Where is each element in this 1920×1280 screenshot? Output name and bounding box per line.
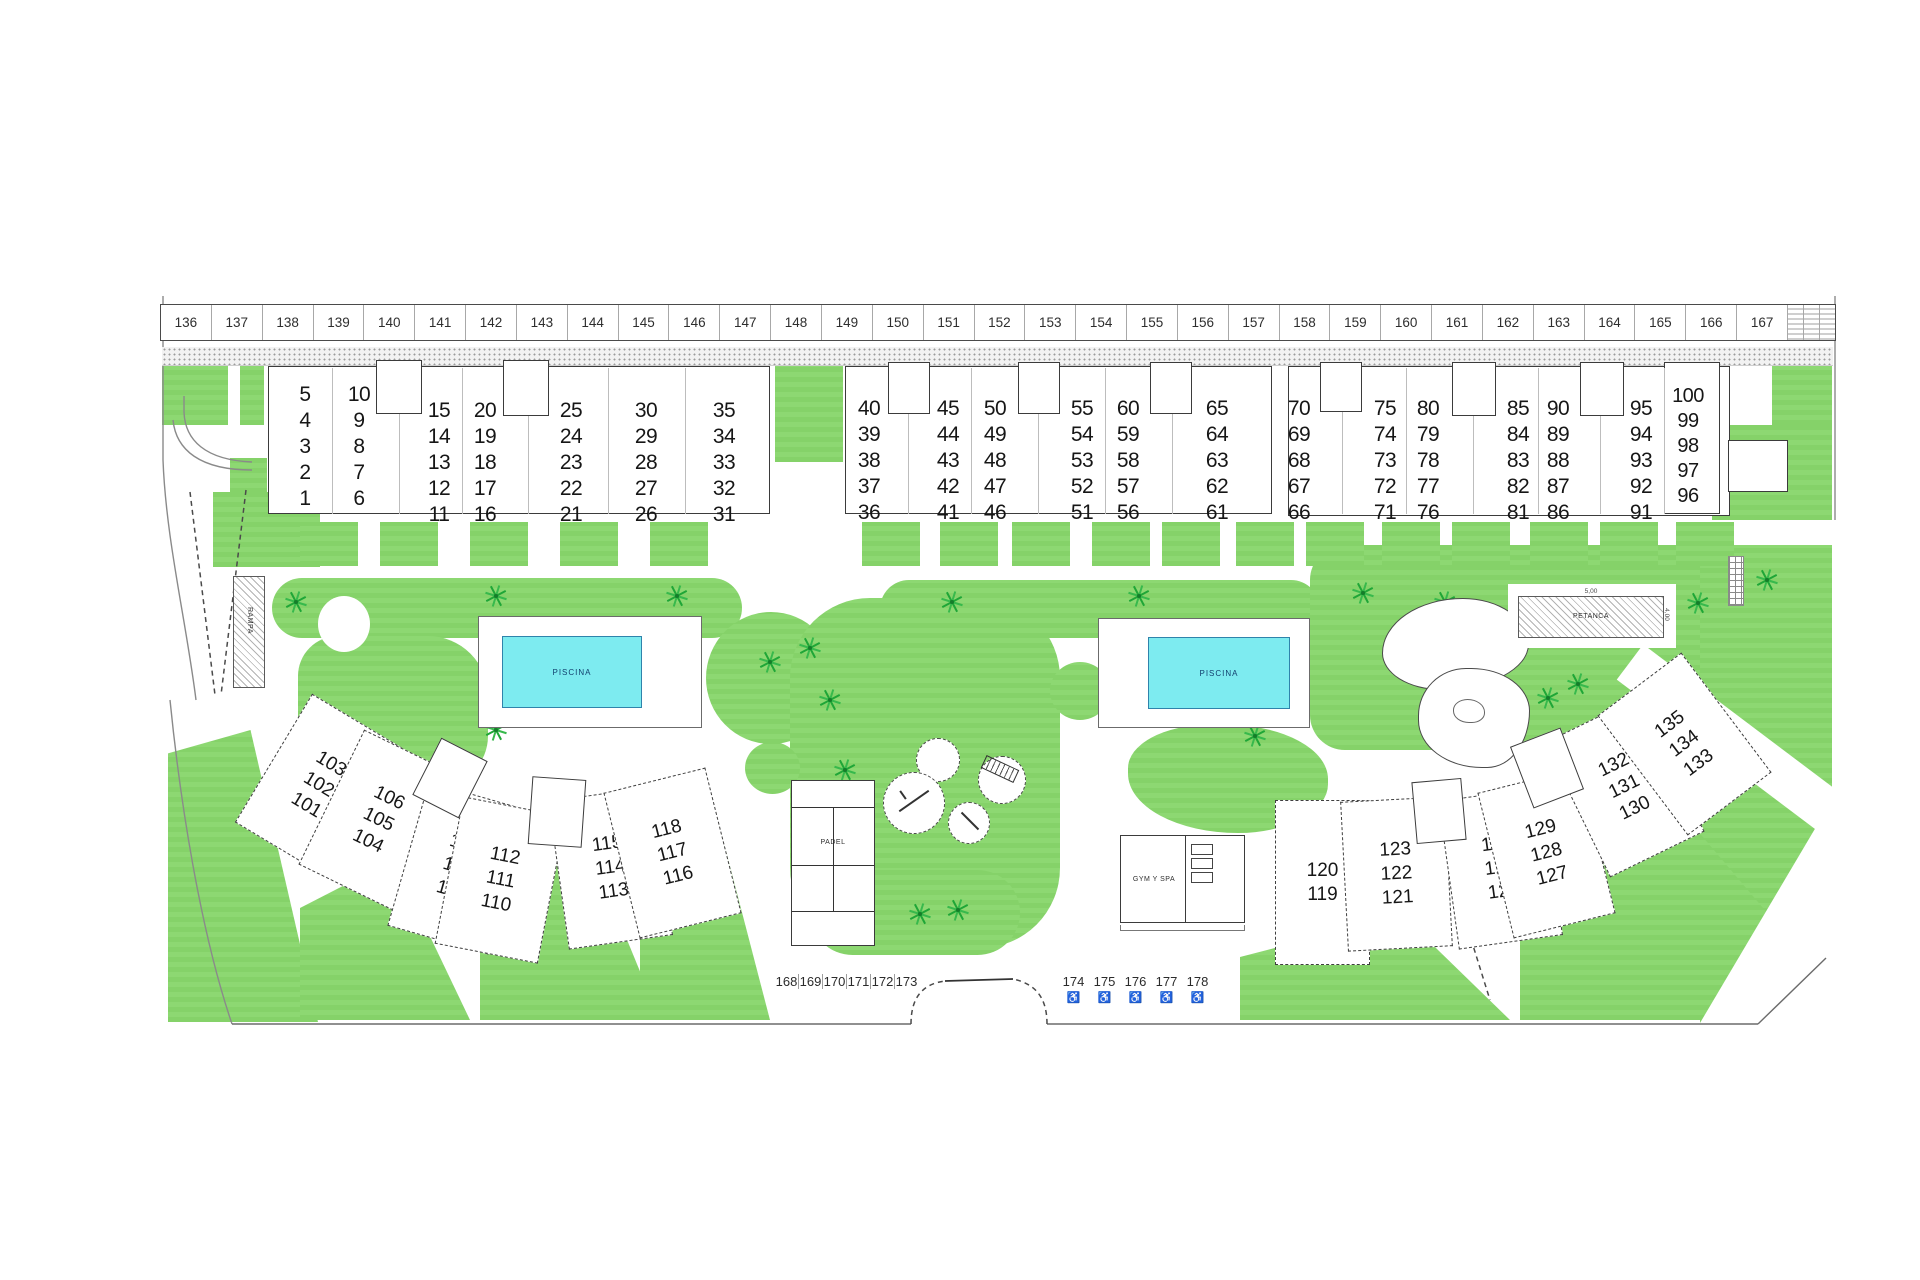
gym-spa-building: GYM Y SPA [1120, 835, 1245, 923]
palm-tree-icon [283, 589, 309, 615]
parking-space-small [1804, 305, 1820, 340]
parking-space-161: 161 [1432, 305, 1483, 340]
parking-number: 174 [1063, 974, 1085, 989]
parking-space-147: 147 [720, 305, 771, 340]
unit-column-86-90: 9089888786 [1532, 396, 1584, 526]
equipment [1191, 844, 1213, 855]
unit-8: 8 [333, 434, 385, 460]
unit-77: 77 [1402, 474, 1454, 500]
palm-tree-icon [1350, 580, 1376, 606]
parking-space-small [1788, 305, 1804, 340]
parking-space-170: 170 [822, 974, 846, 989]
parking-space-149: 149 [822, 305, 873, 340]
parking-space-162: 162 [1483, 305, 1534, 340]
unit-14: 14 [413, 424, 465, 450]
petanca-court: 5,00 PETANCA 4,00 [1518, 596, 1664, 638]
unit-90: 90 [1532, 396, 1584, 422]
unit-79: 79 [1402, 422, 1454, 448]
unit-22: 22 [545, 476, 597, 502]
unit-33: 33 [698, 450, 750, 476]
unit-98: 98 [1662, 434, 1714, 459]
unit-44: 44 [922, 422, 974, 448]
unit-88: 88 [1532, 448, 1584, 474]
unit-47: 47 [969, 474, 1021, 500]
unit-41: 41 [922, 500, 974, 526]
playground-circle [883, 772, 945, 834]
stair-core [503, 360, 549, 416]
unit-43: 43 [922, 448, 974, 474]
unit-divider [608, 368, 609, 514]
stair-core [528, 776, 587, 848]
unit-25: 25 [545, 398, 597, 424]
unit-31: 31 [698, 502, 750, 528]
unit-38: 38 [843, 448, 895, 474]
parking-space-141: 141 [415, 305, 466, 340]
padel-label: PADEL [792, 839, 874, 846]
unit-34: 34 [698, 424, 750, 450]
unit-46: 46 [969, 500, 1021, 526]
stair-core [1150, 362, 1192, 414]
unit-17: 17 [459, 476, 511, 502]
unit-column-31-35: 3534333231 [698, 398, 750, 528]
unit-48: 48 [969, 448, 1021, 474]
parking-space-155: 155 [1127, 305, 1178, 340]
palm-tree-icon [1126, 583, 1152, 609]
parking-space-136: 136 [161, 305, 212, 340]
wheelchair-icon: ♿ [1151, 991, 1182, 1004]
unit-37: 37 [843, 474, 895, 500]
unit-30: 30 [620, 398, 672, 424]
parking-space-152: 152 [975, 305, 1026, 340]
unit-column-26-30: 3029282726 [620, 398, 672, 528]
parking-space-150: 150 [873, 305, 924, 340]
parking-space-173: 173 [894, 974, 918, 989]
parking-row-168-173: 168169170171172173 [775, 974, 918, 989]
wheelchair-icon: ♿ [1089, 991, 1120, 1004]
unit-column-76-80: 8079787776 [1402, 396, 1454, 526]
unit-column-46-50: 5049484746 [969, 396, 1021, 526]
palm-tree-icon [664, 583, 690, 609]
unit-column-16-20: 2019181716 [459, 398, 511, 528]
unit-123: 123 [1379, 837, 1412, 863]
parking-number: 176 [1125, 974, 1147, 989]
site-plan-canvas: 1361371381391401411421431441451461471481… [0, 0, 1920, 1280]
parking-space-144: 144 [568, 305, 619, 340]
stair-core [1018, 362, 1060, 414]
parking-space-177: 177♿ [1151, 974, 1182, 1004]
parking-space-175: 175♿ [1089, 974, 1120, 1004]
palm-tree-icon [797, 635, 823, 661]
unit-93: 93 [1615, 448, 1667, 474]
unit-52: 52 [1056, 474, 1108, 500]
palm-tree-icon [1535, 685, 1561, 711]
unit-66: 66 [1273, 500, 1325, 526]
palm-tree-icon [1754, 567, 1780, 593]
unit-column-36-40: 4039383736 [843, 396, 895, 526]
unit-1: 1 [279, 486, 331, 512]
palm-tree-icon [945, 897, 971, 923]
unit-91: 91 [1615, 500, 1667, 526]
unit-78: 78 [1402, 448, 1454, 474]
unit-column-66-70: 7069686766 [1273, 396, 1325, 526]
unit-51: 51 [1056, 500, 1108, 526]
building-step [1728, 440, 1788, 492]
parking-space-142: 142 [466, 305, 517, 340]
unit-62: 62 [1191, 474, 1243, 500]
unit-39: 39 [843, 422, 895, 448]
parking-space-157: 157 [1229, 305, 1280, 340]
unit-89: 89 [1532, 422, 1584, 448]
unit-column-61-65: 6564636261 [1191, 396, 1243, 526]
stair-core [888, 362, 930, 414]
stair-core [1320, 362, 1362, 412]
parking-space-178: 178♿ [1182, 974, 1213, 1004]
wheelchair-icon: ♿ [1120, 991, 1151, 1004]
unit-121: 121 [1381, 885, 1414, 911]
palm-tree-icon [757, 649, 783, 675]
parking-space-145: 145 [619, 305, 670, 340]
parking-number: 178 [1187, 974, 1209, 989]
unit-column-96-100: 10099989796 [1662, 384, 1714, 509]
unit-13: 13 [413, 450, 465, 476]
palm-tree-icon [817, 687, 843, 713]
petanca-width-dim: 5,00 [1519, 588, 1663, 595]
parking-space-172: 172 [870, 974, 894, 989]
parking-space-159: 159 [1330, 305, 1381, 340]
unit-column-1-5: 54321 [279, 382, 331, 512]
unit-99: 99 [1662, 409, 1714, 434]
parking-number: 177 [1156, 974, 1178, 989]
stair-core [1452, 362, 1496, 416]
unit-column-41-45: 4544434241 [922, 396, 974, 526]
unit-6: 6 [333, 486, 385, 512]
parking-space-158: 158 [1280, 305, 1331, 340]
petanca-height-dim: 4,00 [1663, 608, 1670, 621]
unit-column-21-25: 2524232221 [545, 398, 597, 528]
unit-53: 53 [1056, 448, 1108, 474]
unit-16: 16 [459, 502, 511, 528]
unit-24: 24 [545, 424, 597, 450]
unit-100: 100 [1662, 384, 1714, 409]
unit-76: 76 [1402, 500, 1454, 526]
parking-space-166: 166 [1686, 305, 1737, 340]
unit-57: 57 [1102, 474, 1154, 500]
unit-7: 7 [333, 460, 385, 486]
ramp: RAMPA [233, 576, 265, 688]
parking-space-167: 167 [1737, 305, 1788, 340]
parking-space-163: 163 [1534, 305, 1585, 340]
pool-right: PISCINA [1148, 637, 1290, 709]
parking-space-165: 165 [1635, 305, 1686, 340]
unit-67: 67 [1273, 474, 1325, 500]
unit-96: 96 [1662, 484, 1714, 509]
pool-right-label: PISCINA [1199, 669, 1238, 678]
unit-63: 63 [1191, 448, 1243, 474]
unit-35: 35 [698, 398, 750, 424]
unit-70: 70 [1273, 396, 1325, 422]
playground-circle [948, 802, 990, 844]
equipment [1191, 858, 1213, 869]
gym-label: GYM Y SPA [1121, 876, 1187, 883]
unit-18: 18 [459, 450, 511, 476]
ramp-label: RAMPA [246, 607, 253, 634]
parking-space-156: 156 [1178, 305, 1229, 340]
palm-tree-icon [939, 589, 965, 615]
stair-core [1580, 362, 1624, 416]
pool-left: PISCINA [502, 636, 642, 708]
unit-61: 61 [1191, 500, 1243, 526]
padel-court: PADEL [791, 780, 875, 946]
unit-11: 11 [413, 502, 465, 528]
unit-119: 119 [1307, 883, 1339, 907]
equipment [1191, 872, 1213, 883]
stair-core [376, 360, 422, 414]
unit-column-56-60: 6059585756 [1102, 396, 1154, 526]
wheelchair-icon: ♿ [1058, 991, 1089, 1004]
parking-space-151: 151 [924, 305, 975, 340]
unit-65: 65 [1191, 396, 1243, 422]
unit-87: 87 [1532, 474, 1584, 500]
unit-29: 29 [620, 424, 672, 450]
unit-122: 122 [1380, 861, 1413, 887]
gym-terrace [1120, 925, 1245, 931]
parking-space-153: 153 [1025, 305, 1076, 340]
unit-64: 64 [1191, 422, 1243, 448]
parking-space-160: 160 [1381, 305, 1432, 340]
parking-space-174: 174♿ [1058, 974, 1089, 1004]
wheelchair-icon: ♿ [1182, 991, 1213, 1004]
parking-space-169: 169 [798, 974, 822, 989]
petanca-label: PETANCA [1519, 613, 1663, 620]
stair-core [1411, 778, 1466, 844]
unit-50: 50 [969, 396, 1021, 422]
unit-68: 68 [1273, 448, 1325, 474]
palm-tree-icon [1685, 590, 1711, 616]
unit-divider [685, 368, 686, 514]
unit-94: 94 [1615, 422, 1667, 448]
parking-row-174-178: 174♿175♿176♿177♿178♿ [1058, 974, 1213, 1004]
parking-space-164: 164 [1585, 305, 1636, 340]
unit-80: 80 [1402, 396, 1454, 422]
unit-49: 49 [969, 422, 1021, 448]
unit-86: 86 [1532, 500, 1584, 526]
parking-space-140: 140 [364, 305, 415, 340]
unit-69: 69 [1273, 422, 1325, 448]
palm-tree-icon [907, 901, 933, 927]
parking-space-137: 137 [212, 305, 263, 340]
pool-left-label: PISCINA [552, 668, 591, 677]
unit-54: 54 [1056, 422, 1108, 448]
parking-space-171: 171 [846, 974, 870, 989]
parking-space-139: 139 [314, 305, 365, 340]
unit-32: 32 [698, 476, 750, 502]
parking-space-168: 168 [775, 974, 798, 989]
unit-42: 42 [922, 474, 974, 500]
unit-55: 55 [1056, 396, 1108, 422]
unit-28: 28 [620, 450, 672, 476]
unit-21: 21 [545, 502, 597, 528]
palm-tree-icon [1565, 671, 1591, 697]
unit-column-11-15: 1514131211 [413, 398, 465, 528]
unit-26: 26 [620, 502, 672, 528]
unit-12: 12 [413, 476, 465, 502]
unit-2: 2 [279, 460, 331, 486]
parking-strip-top: 1361371381391401411421431441451461471481… [160, 304, 1836, 341]
unit-19: 19 [459, 424, 511, 450]
unit-92: 92 [1615, 474, 1667, 500]
parking-space-small [1820, 305, 1835, 340]
parking-space-148: 148 [771, 305, 822, 340]
parking-space-143: 143 [517, 305, 568, 340]
parking-space-146: 146 [669, 305, 720, 340]
pergola-grid [1728, 556, 1744, 606]
parking-space-154: 154 [1076, 305, 1127, 340]
unit-column-51-55: 5554535251 [1056, 396, 1108, 526]
parking-space-176: 176♿ [1120, 974, 1151, 1004]
unit-97: 97 [1662, 459, 1714, 484]
unit-36: 36 [843, 500, 895, 526]
parking-number: 175 [1094, 974, 1116, 989]
unit-110: 110 [479, 889, 513, 918]
unit-3: 3 [279, 434, 331, 460]
unit-56: 56 [1102, 500, 1154, 526]
unit-4: 4 [279, 408, 331, 434]
unit-5: 5 [279, 382, 331, 408]
unit-27: 27 [620, 476, 672, 502]
unit-59: 59 [1102, 422, 1154, 448]
unit-60: 60 [1102, 396, 1154, 422]
parking-space-138: 138 [263, 305, 314, 340]
palm-tree-icon [483, 583, 509, 609]
unit-58: 58 [1102, 448, 1154, 474]
unit-23: 23 [545, 450, 597, 476]
unit-120: 120 [1307, 859, 1339, 883]
